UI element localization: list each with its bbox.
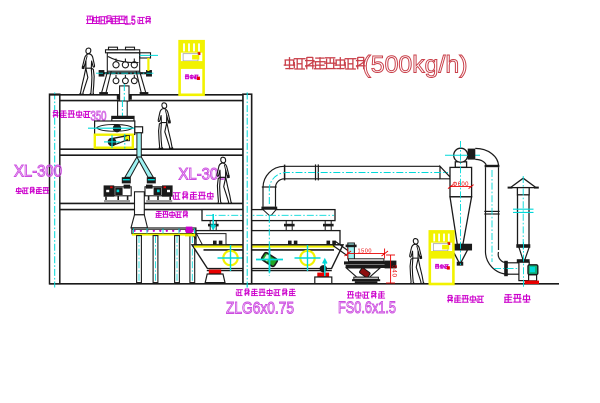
svg-text:FS0.6x1.5: FS0.6x1.5 bbox=[338, 298, 396, 317]
svg-text:(500kg/h): (500kg/h) bbox=[363, 52, 468, 79]
svg-text:1500: 1500 bbox=[358, 248, 372, 254]
svg-text:XL-300: XL-300 bbox=[14, 162, 62, 181]
svg-text:ZLG6x0.75: ZLG6x0.75 bbox=[226, 299, 294, 318]
svg-text:1.5: 1.5 bbox=[125, 13, 136, 27]
svg-text:540: 540 bbox=[391, 265, 398, 278]
